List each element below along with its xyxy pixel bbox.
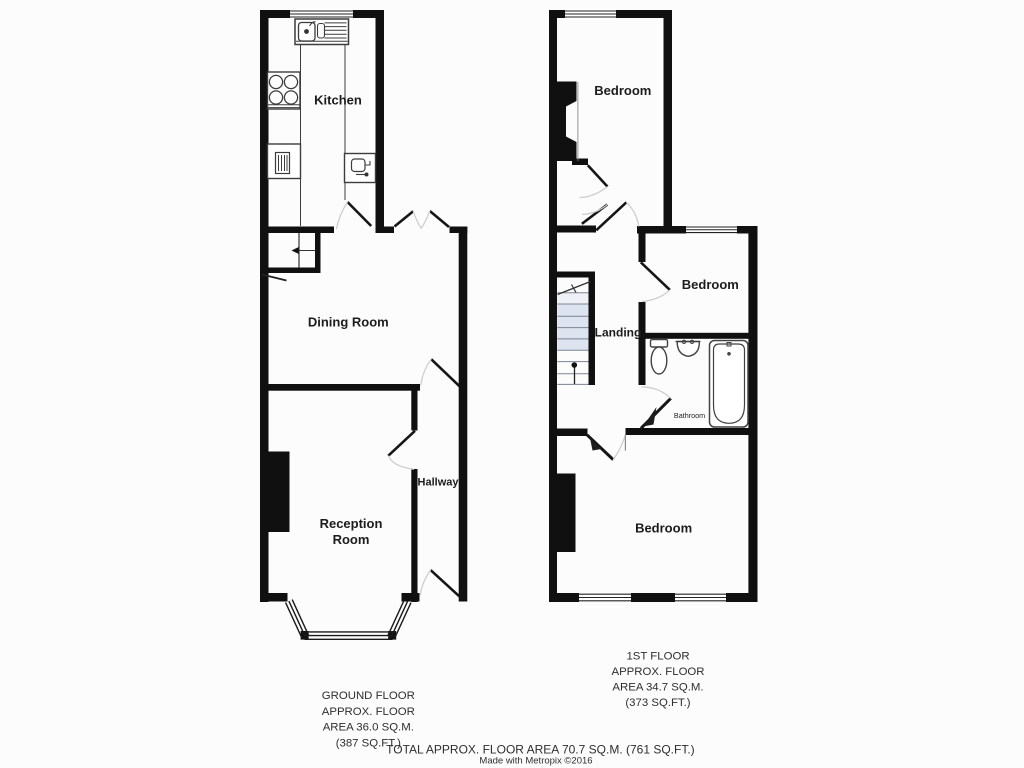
svg-text:(373 SQ.FT.): (373 SQ.FT.) — [625, 697, 690, 709]
svg-text:Made with Metropix ©2016: Made with Metropix ©2016 — [479, 755, 592, 766]
svg-text:Bathroom: Bathroom — [674, 411, 705, 420]
svg-text:Room: Room — [333, 532, 370, 547]
svg-text:1ST FLOOR: 1ST FLOOR — [626, 650, 689, 662]
svg-text:Hallway: Hallway — [418, 477, 460, 489]
svg-text:APPROX. FLOOR: APPROX. FLOOR — [322, 706, 415, 718]
svg-text:Bedroom: Bedroom — [635, 521, 692, 536]
svg-text:Bedroom: Bedroom — [682, 277, 739, 292]
svg-text:Kitchen: Kitchen — [314, 93, 362, 108]
svg-text:TOTAL APPROX. FLOOR AREA 70.7: TOTAL APPROX. FLOOR AREA 70.7 SQ.M. (761… — [386, 742, 695, 756]
svg-text:AREA 36.0 SQ.M.: AREA 36.0 SQ.M. — [323, 721, 414, 733]
svg-text:Landing: Landing — [595, 326, 642, 340]
svg-text:GROUND FLOOR: GROUND FLOOR — [322, 690, 415, 702]
svg-text:APPROX. FLOOR: APPROX. FLOOR — [611, 666, 704, 678]
svg-text:AREA 34.7 SQ.M.: AREA 34.7 SQ.M. — [612, 681, 703, 693]
svg-text:Bedroom: Bedroom — [594, 83, 651, 98]
svg-text:Dining Room: Dining Room — [308, 315, 389, 330]
svg-text:Reception: Reception — [320, 516, 383, 531]
